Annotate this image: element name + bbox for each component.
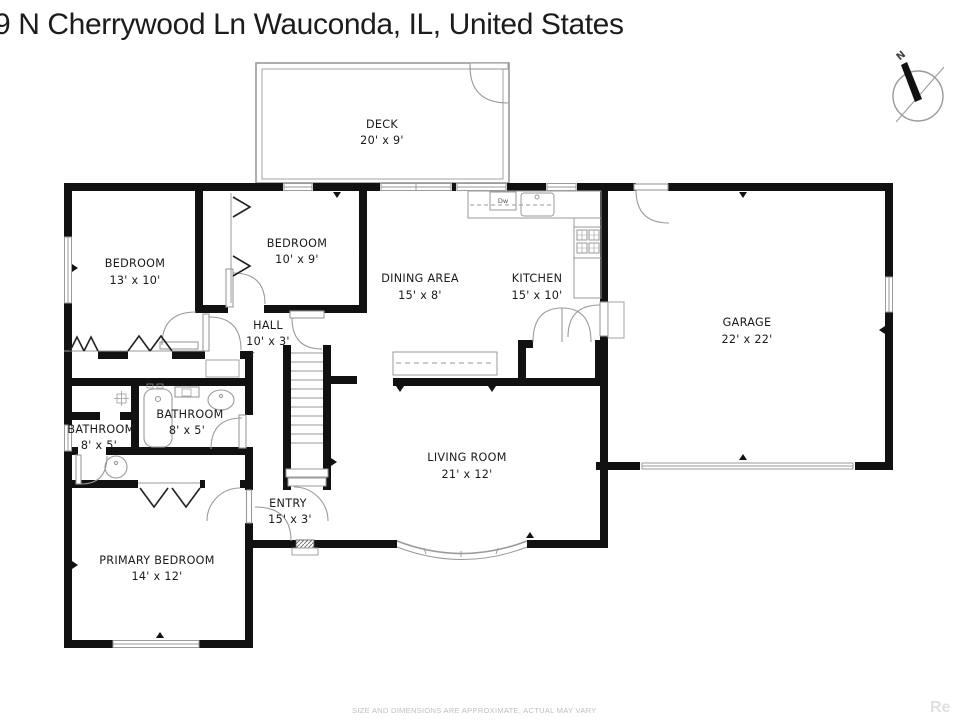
stair-top-door [290,311,324,349]
room-dims-bathroom-hall: 8' x 5' [169,424,205,437]
closet-symbols [64,193,250,507]
kitchen-closet-doors [533,308,591,342]
primary-bedroom-door [207,488,240,521]
compass-needle [901,62,922,102]
bay-window [397,541,527,560]
stove [574,227,601,258]
front-door [292,540,318,555]
closet-fixture [114,391,129,406]
compass-north-label: N [895,49,908,63]
compass: N [893,49,944,122]
garage-entry-door [634,184,669,223]
kitchen-garage-door [568,302,608,337]
room-dims-dining: 15' x 8' [398,289,442,302]
linen-closet [206,360,239,377]
room-label-primary: PRIMARY BEDROOM [99,554,214,567]
room-dims-entry: 15' x 3' [268,513,312,526]
room-label-entry: ENTRY [269,497,307,510]
stairs [286,353,328,486]
room-label-bedroom-left: BEDROOM [105,257,166,270]
dining-counter [393,352,497,375]
dishwasher-label: Dw [498,197,509,205]
room-dims-deck: 20' x 9' [360,134,404,147]
room-label-garage: GARAGE [723,316,772,329]
bathroom-left-door [76,455,107,484]
left-bath-sink [105,456,127,478]
room-label-dining: DINING AREA [381,272,459,285]
bedroom-top-door [226,269,265,307]
room-dims-bathroom-left: 8' x 5' [81,439,117,452]
room-dims-bedroom-top: 10' x 9' [275,253,319,266]
room-dims-bedroom-left: 13' x 10' [109,274,160,287]
room-label-bathroom-left: BATHROOM [67,423,134,436]
hall-closet-door [203,314,241,351]
room-label-living: LIVING ROOM [427,451,506,464]
watermark: Re [930,699,950,717]
disclaimer-text: SIZE AND DIMENSIONS ARE APPROXIMATE, ACT… [352,706,597,715]
floor-plan-page: 9 N Cherrywood Ln Wauconda, IL, United S… [0,0,960,720]
deck-door [470,63,508,103]
room-label-hall: HALL [253,319,283,332]
hall-marker: z [249,350,255,360]
toilet [175,387,199,397]
hall-bath-sink [208,390,234,410]
room-dims-kitchen: 15' x 10' [511,289,562,302]
room-label-bedroom-top: BEDROOM [267,237,328,250]
room-dims-primary: 14' x 12' [131,570,182,583]
room-dims-garage: 22' x 22' [721,333,772,346]
room-label-kitchen: KITCHEN [512,272,563,285]
floor-plan-drawing: Dw [0,0,960,720]
room-dims-hall: 10' x 3' [246,335,290,348]
room-label-deck: DECK [366,118,398,131]
room-dims-living: 21' x 12' [441,468,492,481]
room-label-bathroom-hall: BATHROOM [156,408,223,421]
garage-step [608,302,624,338]
